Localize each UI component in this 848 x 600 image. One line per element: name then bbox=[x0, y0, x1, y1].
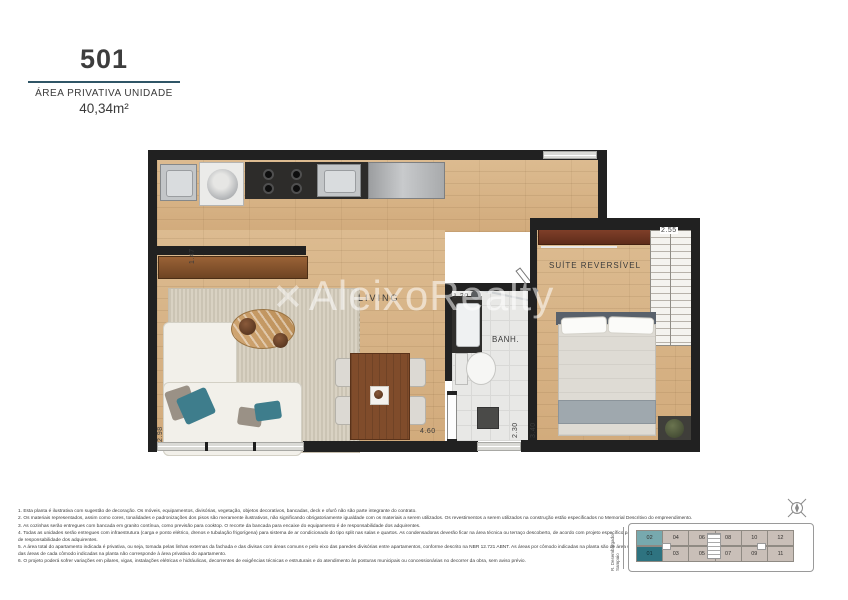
window-mullion bbox=[253, 442, 256, 451]
bed-throw bbox=[558, 400, 656, 424]
burner-icon bbox=[291, 169, 302, 180]
street-label: R. Desembargador Sampaio bbox=[610, 521, 620, 571]
dining-bowl bbox=[374, 390, 383, 399]
washer-drum bbox=[207, 169, 238, 200]
clothes-rail bbox=[541, 246, 617, 248]
kitchen-window bbox=[543, 151, 597, 159]
area-value: 40,34m² bbox=[28, 101, 180, 116]
dim-kitchen-depth: 1.47 bbox=[189, 230, 196, 264]
sofa-pillow-teal-2 bbox=[254, 400, 282, 421]
footnote: 1. Esta planta é ilustrativa com sugestã… bbox=[18, 509, 790, 515]
wall-suite-right bbox=[691, 218, 700, 452]
bathroom-label: BANH. bbox=[492, 335, 519, 344]
unit-header: 501 ÁREA PRIVATIVA UNIDADE 40,34m² bbox=[28, 44, 180, 116]
floorplan-page: 501 ÁREA PRIVATIVA UNIDADE 40,34m² bbox=[0, 0, 848, 600]
dim-suite-width: 2.55 bbox=[660, 227, 678, 234]
burner-icon bbox=[263, 183, 274, 194]
keyplan-unit-12: 12 bbox=[767, 530, 794, 546]
coffee-table-bowl bbox=[239, 318, 256, 335]
shower-glass-panel bbox=[447, 392, 457, 442]
suite-label: SUÍTE REVERSÍVEL bbox=[549, 261, 641, 270]
fridge bbox=[368, 162, 445, 199]
street-line bbox=[623, 527, 624, 569]
wall-tv-half bbox=[148, 246, 306, 255]
wall-kitchen-right bbox=[598, 150, 607, 218]
wardrobe-divider bbox=[670, 231, 671, 345]
bathroom-window bbox=[477, 442, 521, 451]
living-window bbox=[157, 442, 304, 451]
bed-pillow bbox=[608, 316, 655, 335]
bed-pillow bbox=[561, 316, 608, 335]
unit-number: 501 bbox=[28, 44, 180, 75]
wall-bottom-mid bbox=[303, 441, 478, 452]
dim-bath-length: 2.30 bbox=[512, 408, 519, 438]
burner-icon bbox=[291, 183, 302, 194]
footnote: 2. Os materiais representados, assim com… bbox=[18, 516, 790, 522]
watermark-text: AleixoRealty bbox=[309, 272, 554, 319]
dim-suite-length: 3.40 bbox=[530, 408, 537, 438]
watermark: ✕AleixoRealty bbox=[272, 272, 554, 320]
watermark-x-icon: ✕ bbox=[272, 277, 305, 319]
laundry-tank bbox=[160, 164, 197, 201]
kitchen-sink-basin bbox=[324, 170, 356, 193]
coffee-table-bowl-2 bbox=[273, 333, 288, 348]
clothes-rack bbox=[538, 228, 652, 245]
kitchen-sink bbox=[317, 164, 361, 197]
keyplan-unit-02: 02 bbox=[636, 530, 663, 546]
dim-living-width: 2.98 bbox=[157, 412, 164, 442]
compass-icon bbox=[783, 494, 811, 522]
plant-icon bbox=[665, 419, 684, 438]
wall-left bbox=[148, 150, 157, 452]
dim-living-length: 4.60 bbox=[420, 428, 436, 435]
cooktop bbox=[254, 167, 310, 195]
wardrobe bbox=[650, 230, 692, 346]
burner-icon bbox=[263, 169, 274, 180]
laundry-tank-basin bbox=[166, 170, 193, 197]
keyplan-unit-01-highlighted: 01 bbox=[636, 546, 663, 562]
window-mullion bbox=[205, 442, 208, 451]
washing-machine bbox=[199, 162, 244, 206]
shower-drain bbox=[477, 407, 499, 429]
wall-top bbox=[148, 150, 607, 160]
toilet-bowl bbox=[466, 352, 496, 385]
header-divider bbox=[28, 81, 180, 83]
keyplan-stair-core bbox=[707, 533, 721, 559]
wall-suite-bottom bbox=[521, 440, 700, 452]
keyplan-elevator-core-2 bbox=[757, 543, 766, 550]
keyplan-elevator-core bbox=[662, 543, 671, 550]
keyplan-unit-11: 11 bbox=[767, 546, 794, 562]
area-label: ÁREA PRIVATIVA UNIDADE bbox=[28, 88, 180, 99]
